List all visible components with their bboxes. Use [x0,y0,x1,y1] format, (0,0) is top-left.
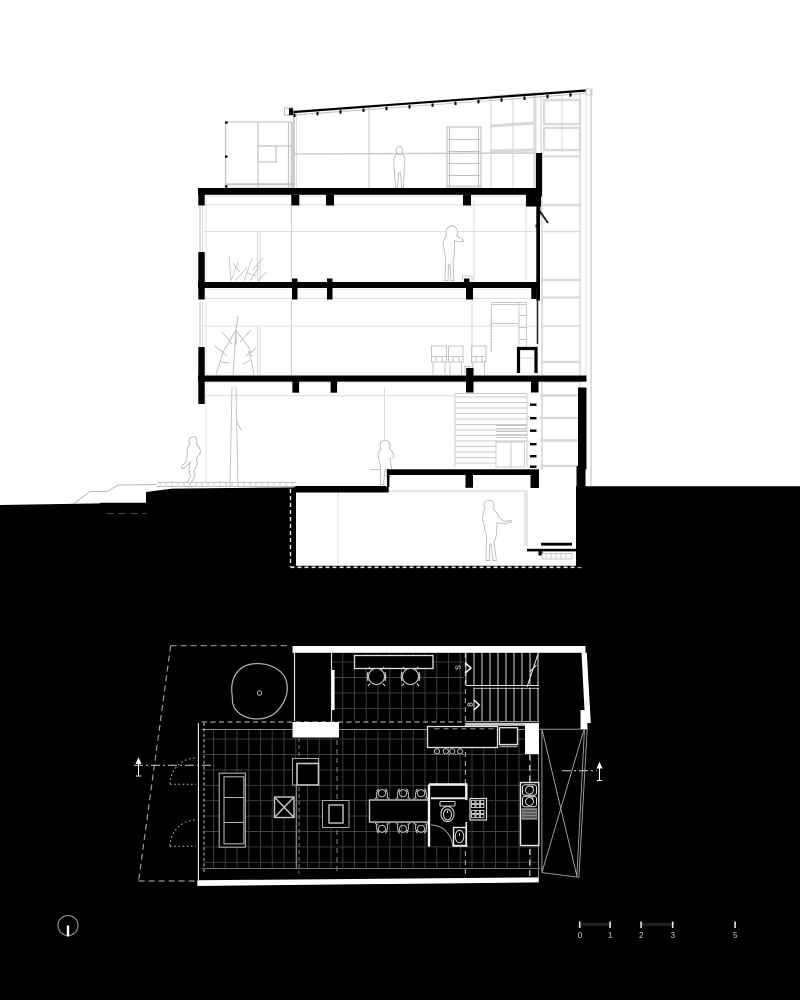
svg-text:0: 0 [578,931,583,940]
svg-text:3: 3 [671,931,676,940]
svg-text:5: 5 [733,931,738,940]
svg-text:S: S [456,665,463,670]
svg-text:2: 2 [639,931,644,940]
svg-text:1: 1 [608,931,613,940]
svg-text:B: B [468,702,475,707]
